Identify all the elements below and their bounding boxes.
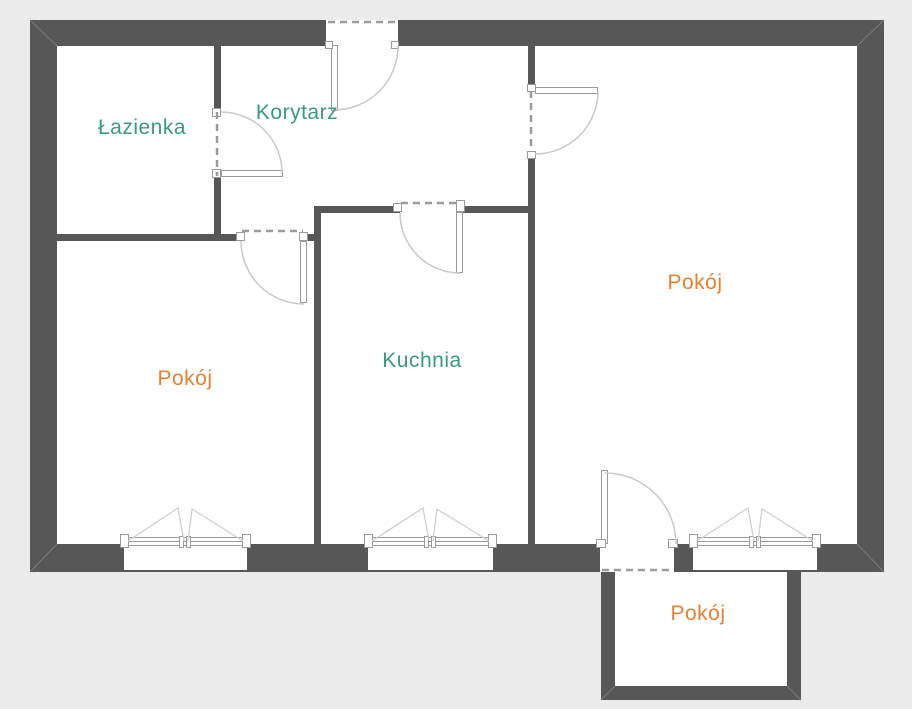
entrance-door-cap-r	[391, 41, 399, 49]
window-pokoj-right-cap-l	[689, 534, 698, 548]
lazienka-door-cap-b	[212, 169, 221, 178]
ext-wall-right	[787, 572, 801, 700]
pokoj-left-door-cap-r	[299, 232, 308, 241]
window-pokoj-left-cap-r	[242, 534, 251, 548]
room-label-korytarz: Korytarz	[256, 101, 338, 125]
wall-kuchnia-top-right	[460, 206, 528, 213]
wall-lazienka-pokoj-left	[57, 234, 241, 241]
window-pokoj-left-box	[124, 546, 247, 570]
window-kuchnia-cap-r	[488, 534, 497, 548]
pokoj-bottom-door-opening	[600, 544, 674, 572]
outer-wall-right	[857, 20, 884, 572]
pokoj-bottom-door-cap-l	[596, 539, 606, 548]
outer-wall-top	[30, 20, 884, 46]
ext-room-floor	[615, 572, 787, 686]
kuchnia-door-cap-l	[393, 203, 402, 212]
wall-pokoj-left-kuchnia	[314, 206, 321, 544]
wall-lazienka-korytarz-upper	[214, 46, 221, 112]
lazienka-door-cap-t	[212, 108, 221, 117]
pokoj-bottom-door-leaf	[601, 470, 608, 544]
room-label-pokoj-left: Pokój	[157, 367, 212, 391]
window-pokoj-left-mullion-a	[179, 536, 184, 548]
outer-wall-left	[30, 20, 57, 572]
ext-wall-bottom	[601, 686, 801, 700]
entrance-door-opening	[326, 20, 398, 46]
wall-lazienka-korytarz-lower	[214, 177, 221, 241]
room-label-kuchnia: Kuchnia	[382, 349, 461, 373]
pokoj-right-door-cap-t	[527, 84, 536, 92]
window-pokoj-left-cap-l	[120, 534, 129, 548]
window-kuchnia-mullion-b	[431, 536, 436, 548]
entrance-door-cap-l	[325, 41, 333, 49]
lazienka-door-leaf	[221, 170, 283, 177]
wall-pokoj-right-lower	[528, 154, 535, 544]
pokoj-right-door-leaf	[535, 87, 598, 94]
window-pokoj-right-cap-r	[812, 534, 821, 548]
pokoj-bottom-door-cap-r	[668, 539, 678, 548]
kuchnia-door-leaf	[456, 212, 463, 273]
pokoj-left-door-leaf	[300, 241, 307, 303]
wall-kuchnia-top-left	[321, 206, 400, 213]
pokoj-left-door-cap-l	[236, 232, 245, 241]
window-pokoj-right-glazing	[693, 537, 817, 546]
window-pokoj-right-mullion-a	[749, 536, 754, 548]
window-pokoj-right-mullion-b	[756, 536, 761, 548]
window-kuchnia-mullion-a	[424, 536, 429, 548]
pokoj-right-door-cap-b	[527, 151, 536, 159]
window-kuchnia-cap-l	[364, 534, 373, 548]
window-kuchnia-box	[368, 546, 493, 570]
room-label-pokoj-right: Pokój	[667, 271, 722, 295]
room-label-lazienka: Łazienka	[98, 116, 186, 140]
floor-plan: Łazienka Korytarz Kuchnia Pokój Pokój Po…	[0, 0, 912, 709]
kuchnia-door-cap-r	[456, 200, 465, 212]
window-pokoj-right-box	[693, 546, 817, 570]
room-label-pokoj-bottom: Pokój	[670, 602, 725, 626]
window-pokoj-left-mullion-b	[186, 536, 191, 548]
ext-wall-left	[601, 572, 615, 700]
